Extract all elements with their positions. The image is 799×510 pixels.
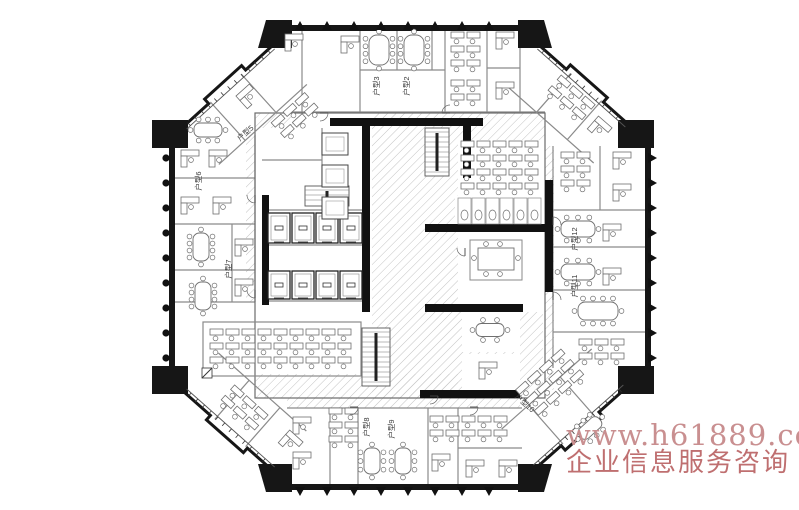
unit-label: 户型11: [569, 275, 579, 298]
unit-label: 户型3: [371, 76, 381, 95]
unit-label: 户型6: [193, 171, 203, 190]
unit-label: 户型2: [401, 76, 411, 95]
unit-label: 户型7: [223, 259, 233, 278]
unit-label: 户型8: [361, 417, 371, 436]
floor-plan-svg: 户型2户型3户型5户型6户型7户型8户型9户型10户型11户型12: [0, 0, 799, 510]
unit-label: 户型9: [386, 419, 396, 438]
unit-label: 户型12: [569, 227, 579, 250]
floor-plan-stage: 户型2户型3户型5户型6户型7户型8户型9户型10户型11户型12 www.h6…: [0, 0, 799, 510]
